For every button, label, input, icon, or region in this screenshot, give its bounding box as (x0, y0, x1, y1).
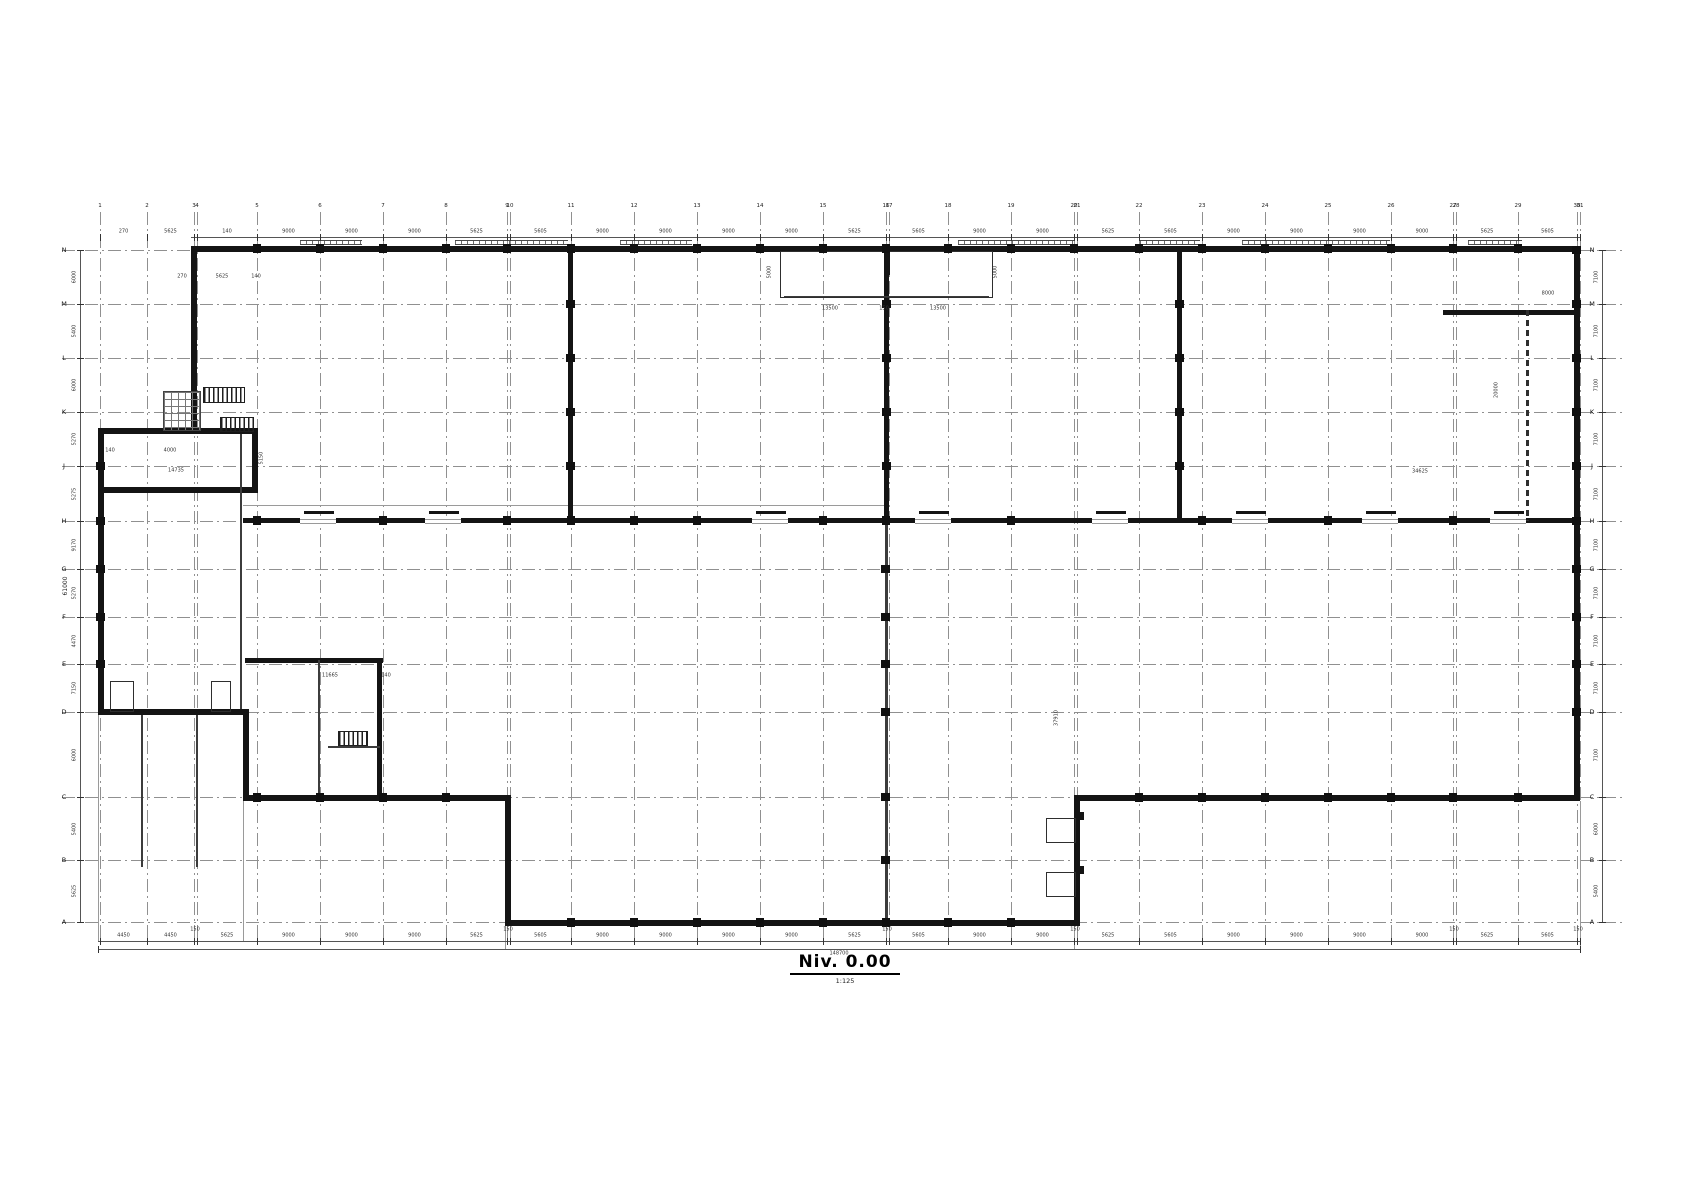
top-dim-value: 270 (119, 230, 129, 235)
top-dim-value: 9000 (722, 230, 735, 235)
grid-column-number: 7 (381, 203, 385, 209)
grid-row-line (62, 569, 1622, 570)
door-track (1232, 519, 1268, 520)
bottom-dim-tick (823, 938, 824, 945)
right-dim-value: 7100 (1595, 325, 1600, 338)
right-dim-tick (1599, 358, 1606, 359)
dim-annotation: 5000 (768, 266, 773, 279)
column-pier (1387, 244, 1395, 253)
door-track (1362, 523, 1398, 524)
top-dim-value: 9000 (1227, 230, 1240, 235)
door-track (425, 523, 461, 524)
right-dim-tick (1599, 922, 1606, 923)
column-pier (1449, 793, 1457, 802)
column-pier (96, 613, 105, 621)
bottom-dim-tick (1077, 938, 1078, 945)
left-inner-wall (240, 434, 242, 709)
grid-column-number: 6 (318, 203, 322, 209)
column-pier (96, 660, 105, 668)
bl-room-wall-h (245, 658, 383, 663)
top-dim-tick (507, 234, 508, 241)
top-dim-tick (1265, 234, 1266, 241)
grid-row-letter-left: J (63, 462, 65, 470)
bottom-dim-tick (1453, 938, 1454, 945)
dim-annotation: 14735 (168, 469, 184, 474)
right-dim-tick (1599, 569, 1606, 570)
left-dim-tick (77, 664, 84, 665)
grid-column-number: 14 (757, 203, 764, 209)
tl-room-bottom-wall (98, 487, 258, 493)
grid-column-line (383, 212, 384, 940)
door-track (300, 519, 336, 520)
grid-column-number: 5 (255, 203, 259, 209)
bottom-dim-value: 5625 (1481, 934, 1494, 939)
top-dim-tick (446, 234, 447, 241)
column-pier (96, 462, 105, 470)
column-pier (96, 565, 105, 573)
grid-column-line (760, 212, 761, 940)
dim-annotation: 20000 (1495, 382, 1500, 398)
column-pier (630, 516, 638, 525)
bottom-dim-tick (1580, 938, 1581, 945)
column-pier (1175, 300, 1184, 308)
column-pier (819, 244, 827, 253)
bottom-dim-value: 9000 (659, 934, 672, 939)
grid-column-line (948, 212, 949, 940)
grid-row-letter-right: E (1590, 660, 1594, 668)
grid-column-number: 10 (507, 203, 514, 209)
grid-row-line (62, 860, 1622, 861)
bottom-dim-value: 5625 (221, 934, 234, 939)
left-dim-tick (77, 250, 84, 251)
dock-block-1 (1076, 812, 1084, 820)
column-pier (1572, 613, 1581, 621)
column-pier (1514, 793, 1522, 802)
interior-wall-v3 (1177, 246, 1182, 523)
right-dim-value: 6000 (1595, 822, 1600, 835)
tr-room-partition (1526, 310, 1529, 521)
dim-annotation: 8000 (1542, 292, 1555, 297)
grid-column-number: 22 (1136, 203, 1143, 209)
extension-line (243, 505, 886, 506)
column-pier (1261, 793, 1269, 802)
column-pier (1324, 516, 1332, 525)
window-band (958, 240, 1075, 245)
grid-column-line (320, 212, 321, 940)
column-pier (756, 244, 764, 253)
top-dim-tick (1074, 234, 1075, 241)
column-pier (630, 918, 638, 927)
top-dim-tick (634, 234, 635, 241)
top-dim-value: 9000 (1353, 230, 1366, 235)
grid-column-line (697, 212, 698, 940)
top-dim-tick (320, 234, 321, 241)
left-dim-tick (77, 412, 84, 413)
grid-row-letter-left: A (62, 918, 66, 926)
bottom-dim-value: 9000 (1290, 934, 1303, 939)
column-pier (1261, 244, 1269, 253)
bottom-dim-pair-value: 150 (503, 928, 513, 933)
tr-room-wall (1443, 310, 1580, 315)
top-dim-value: 9000 (345, 230, 358, 235)
door-opening (915, 516, 951, 526)
dim-annotation: 13500 (822, 307, 838, 312)
left-dim-value: 5400 (73, 325, 78, 338)
dim-annotation: 5000 (994, 266, 999, 279)
door-opening (1232, 516, 1268, 526)
bottom-dim-value: 9000 (1353, 934, 1366, 939)
bottom-dim-pair-value: 150 (1070, 928, 1080, 933)
grid-column-number: 26 (1388, 203, 1395, 209)
column-pier (379, 793, 387, 802)
top-dim-tick (1139, 234, 1140, 241)
column-pier (1449, 244, 1457, 253)
column-pier (882, 516, 890, 525)
grid-row-letter-right: F (1590, 613, 1594, 621)
column-pier (882, 354, 891, 362)
dim-annotation: 34625 (1412, 470, 1428, 475)
door-track (300, 523, 336, 524)
grid-column-line (1518, 212, 1519, 940)
top-dim-tick (1453, 234, 1454, 241)
bottom-dim-tick (1391, 938, 1392, 945)
column-pier (1449, 516, 1457, 525)
extension-line (243, 801, 244, 941)
bottom-dim-tick (1139, 938, 1140, 945)
bottom-dim-tick (1456, 938, 1457, 945)
column-pier (1007, 516, 1015, 525)
top-dim-tick (1580, 234, 1581, 241)
column-pier (1135, 244, 1143, 253)
loading-bay (780, 251, 993, 298)
door-track (1362, 519, 1398, 520)
column-pier (1175, 462, 1184, 470)
bottom-dim-tick (1328, 938, 1329, 945)
grid-column-number: 19 (1008, 203, 1015, 209)
bottom-dim-value: 5605 (1541, 934, 1554, 939)
top-dim-tick (760, 234, 761, 241)
dim-annotation: 4000 (164, 449, 177, 454)
left-dim-tick (77, 304, 84, 305)
left-total-value: 61000 (63, 576, 69, 595)
grid-column-number: 23 (1199, 203, 1206, 209)
right-dim-tick (1599, 617, 1606, 618)
bottom-dim-value: 9000 (1416, 934, 1429, 939)
bottom-dim-value: 5625 (848, 934, 861, 939)
bottom-dim-tick (760, 938, 761, 945)
top-dim-tick (889, 234, 890, 241)
left-dim-tick (77, 617, 84, 618)
column-pier (1198, 793, 1206, 802)
interior-wall-v2-lower (885, 523, 888, 926)
grid-column-line (1456, 212, 1457, 940)
column-pier (882, 408, 891, 416)
grid-row-line (62, 466, 1622, 467)
dim-annotation: 5150 (260, 452, 265, 465)
grid-row-letter-left: D (61, 708, 66, 716)
grid-row-letter-left: G (61, 565, 66, 573)
door-track (752, 523, 788, 524)
door-track (752, 519, 788, 520)
tl-room-right-wall (252, 428, 258, 493)
grid-column-number: 29 (1515, 203, 1522, 209)
column-pier (1387, 793, 1395, 802)
door-opening (752, 516, 788, 526)
grid-row-letter-left: F (62, 613, 66, 621)
grid-column-number: 4 (195, 203, 199, 209)
sliding-door-leaf (304, 511, 334, 514)
window-band (300, 240, 362, 245)
grid-row-letter-right: A (1590, 918, 1594, 926)
drawing-sheet: 4450445015056259000900090005625150560590… (0, 0, 1684, 1191)
grid-column-number: 31 (1577, 203, 1584, 209)
left-dim-value: 6000 (73, 748, 78, 761)
left-dim-value: 6000 (73, 271, 78, 284)
top-dim-tick (1202, 234, 1203, 241)
grid-row-letter-right: D (1589, 708, 1594, 716)
top-dim-value: 5625 (164, 230, 177, 235)
canopy-box-1 (110, 681, 134, 712)
top-dim-tick (1456, 234, 1457, 241)
right-dim-tick (1599, 664, 1606, 665)
column-pier (819, 918, 827, 927)
bottom-dim-tick (1074, 938, 1075, 945)
sliding-door-leaf (429, 511, 459, 514)
bottom-dim-tick (1265, 938, 1266, 945)
right-dim-tick (1599, 304, 1606, 305)
column-pier (881, 793, 890, 801)
top-dim-value: 5605 (912, 230, 925, 235)
bottom-dim-tick (948, 938, 949, 945)
column-pier (1175, 408, 1184, 416)
column-pier (882, 462, 891, 470)
door-track (1490, 523, 1526, 524)
grid-column-line (1328, 212, 1329, 940)
left-dim-value: 5270 (73, 433, 78, 446)
dim-annotation: 140 (251, 275, 261, 280)
bottom-dim-tick (383, 938, 384, 945)
grid-row-line (62, 712, 1622, 713)
grid-column-number: 8 (444, 203, 448, 209)
bottom-dim-pair-value: 150 (1573, 928, 1583, 933)
grid-row-line (62, 358, 1622, 359)
left-dim-tick (77, 569, 84, 570)
bottom-dim-tick (634, 938, 635, 945)
top-dim-tick (194, 234, 195, 241)
right-dim-value: 7100 (1595, 634, 1600, 647)
right-dim-tick (1599, 712, 1606, 713)
top-dim-value: 9000 (596, 230, 609, 235)
bottom-total-tick (98, 946, 99, 953)
bottom-dim-tick (697, 938, 698, 945)
bottom-dim-value: 9000 (408, 934, 421, 939)
bottom-dim-tick (510, 938, 511, 945)
column-pier (881, 708, 890, 716)
left-dim-value: 5270 (73, 587, 78, 600)
top-dim-value: 9000 (659, 230, 672, 235)
grid-row-letter-right: M (1589, 300, 1595, 308)
dock-leveler-2 (1046, 872, 1076, 897)
grid-row-letter-left: N (62, 246, 67, 254)
sliding-door-leaf (1236, 511, 1266, 514)
right-dim-value: 7100 (1595, 271, 1600, 284)
right-dim-tick (1599, 860, 1606, 861)
right-dim-value: 7100 (1595, 433, 1600, 446)
column-pier (1198, 516, 1206, 525)
bottom-dim-tick (1577, 938, 1578, 945)
column-pier (756, 918, 764, 927)
bottom-dim-tick (147, 938, 148, 945)
right-dim-value: 5400 (1595, 885, 1600, 898)
top-dim-value: 9000 (1036, 230, 1049, 235)
column-pier (1572, 462, 1581, 470)
column-pier (881, 856, 890, 864)
grid-row-line (62, 617, 1622, 618)
top-dim-tick (257, 234, 258, 241)
bottom-dim-value: 9000 (973, 934, 986, 939)
column-pier (944, 244, 952, 253)
top-dim-tick (1577, 234, 1578, 241)
dock-block-2 (1076, 866, 1084, 874)
left-dim-tick (77, 466, 84, 467)
grid-row-line (62, 304, 1622, 305)
column-pier (1175, 354, 1184, 362)
column-pier (881, 660, 890, 668)
left-dim-value: 4470 (73, 634, 78, 647)
bottom-dim-tick (1011, 938, 1012, 945)
top-dim-value: 9000 (785, 230, 798, 235)
grid-row-letter-right: H (1590, 517, 1595, 525)
bl-room-wall-v (377, 658, 382, 800)
column-pier (1572, 660, 1581, 668)
left-dim-tick (77, 860, 84, 861)
bottom-dim-tick (197, 938, 198, 945)
column-pier (567, 516, 575, 525)
column-pier (567, 244, 575, 253)
grid-row-letter-left: B (62, 856, 66, 864)
top-dim-value: 9000 (1416, 230, 1429, 235)
grid-column-line (889, 212, 890, 940)
grid-row-letter-right: C (1590, 793, 1595, 801)
door-track (425, 519, 461, 520)
top-dim-tick (1077, 234, 1078, 241)
column-pier (693, 918, 701, 927)
bottom-dim-value: 4450 (117, 934, 130, 939)
door-opening (300, 516, 336, 526)
grid-row-letter-right: N (1590, 246, 1595, 254)
dim-annotation: 140 (381, 674, 391, 679)
grid-column-number: 24 (1262, 203, 1269, 209)
sliding-door-leaf (1494, 511, 1524, 514)
sliding-door-leaf (919, 511, 949, 514)
column-pier (566, 462, 575, 470)
top-dim-tick (697, 234, 698, 241)
column-pier (253, 244, 261, 253)
right-dim-tick (1599, 521, 1606, 522)
column-pier (503, 244, 511, 253)
stair-top-left-1 (203, 387, 245, 403)
left-step-wall (243, 709, 249, 801)
column-pier (253, 516, 261, 525)
grid-row-letter-right: J (1591, 462, 1593, 470)
bottom-dim-tick (571, 938, 572, 945)
window-band (1140, 240, 1200, 245)
column-pier (693, 244, 701, 253)
right-dim-value: 7100 (1595, 487, 1600, 500)
dock-leveler-1 (1046, 818, 1076, 843)
bottom-dim-value: 9000 (596, 934, 609, 939)
column-pier (882, 244, 890, 253)
stair-top-left-2 (220, 417, 254, 432)
column-pier (96, 517, 105, 525)
column-pier (1572, 300, 1581, 308)
column-pier (1324, 244, 1332, 253)
door-track (1232, 523, 1268, 524)
column-pier (1324, 793, 1332, 802)
bottom-dim-value: 5625 (1102, 934, 1115, 939)
left-dim-tick (77, 922, 84, 923)
grid-column-line (823, 212, 824, 940)
grid-row-letter-left: E (62, 660, 66, 668)
stair-room-wall-b (328, 746, 380, 748)
top-dim-value: 5625 (470, 230, 483, 235)
column-pier (379, 516, 387, 525)
grid-row-letter-right: G (1589, 565, 1594, 573)
top-dim-value: 9000 (282, 230, 295, 235)
right-dim-value: 7100 (1595, 748, 1600, 761)
bottom-dim-tick (507, 938, 508, 945)
ramp-line-2 (196, 715, 198, 867)
column-pier (819, 516, 827, 525)
right-dim-tick (1599, 412, 1606, 413)
bottom-dim-tick (1202, 938, 1203, 945)
column-pier (1198, 244, 1206, 253)
top-dim-tick (383, 234, 384, 241)
column-pier (1135, 793, 1143, 802)
left-dim-tick (77, 521, 84, 522)
grid-column-number: 21 (1074, 203, 1081, 209)
column-pier (566, 354, 575, 362)
left-dim-value: 5625 (73, 885, 78, 898)
dim-annotation: 140 (105, 449, 115, 454)
column-pier (1070, 244, 1078, 253)
top-dim-tick (1391, 234, 1392, 241)
door-opening (1362, 516, 1398, 526)
left-dim-value: 7150 (73, 682, 78, 695)
dim-annotation: 37910 (1055, 710, 1060, 726)
left-dim-value: 5275 (73, 487, 78, 500)
door-track (1490, 519, 1526, 520)
bottom-dim-pair-value: 150 (1449, 928, 1459, 933)
dim-annotation: 13500 (930, 307, 946, 312)
column-pier (379, 244, 387, 253)
grid-column-number: 11 (568, 203, 575, 209)
top-dim-value: 5605 (1541, 230, 1554, 235)
grid-column-number: 17 (886, 203, 893, 209)
bottom-dim-tick (194, 938, 195, 945)
grid-column-number: 18 (945, 203, 952, 209)
top-dim-tick (823, 234, 824, 241)
right-dim-value: 7100 (1595, 539, 1600, 552)
top-dim-tick (510, 234, 511, 241)
top-dim-tick (886, 234, 887, 241)
column-pier (442, 244, 450, 253)
door-track (915, 519, 951, 520)
right-dim-tick (1599, 250, 1606, 251)
grid-column-line (147, 212, 148, 940)
grid-row-letter-left: C (62, 793, 67, 801)
top-dim-tick (147, 234, 148, 241)
